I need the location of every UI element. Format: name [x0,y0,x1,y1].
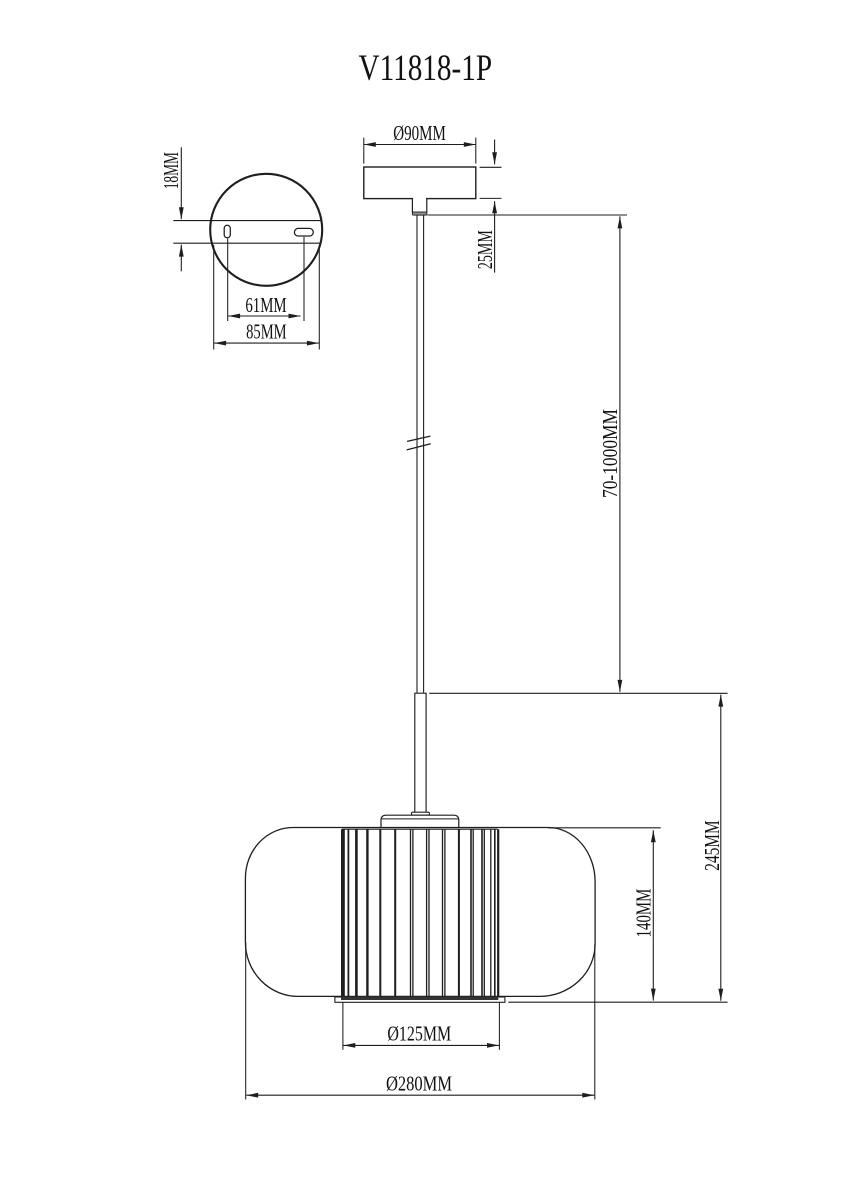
svg-text:85MM: 85MM [246,320,287,344]
svg-text:245MM: 245MM [700,820,724,870]
svg-text:Ø90MM: Ø90MM [393,121,446,145]
svg-text:70-1000MM: 70-1000MM [598,409,622,498]
svg-text:V11818-1P: V11818-1P [358,48,492,89]
svg-text:61MM: 61MM [245,293,286,317]
svg-text:18MM: 18MM [159,152,183,189]
svg-text:Ø125MM: Ø125MM [387,1022,451,1046]
svg-text:140MM: 140MM [631,889,655,938]
svg-text:Ø280MM: Ø280MM [386,1072,452,1096]
svg-text:25MM: 25MM [473,230,497,269]
